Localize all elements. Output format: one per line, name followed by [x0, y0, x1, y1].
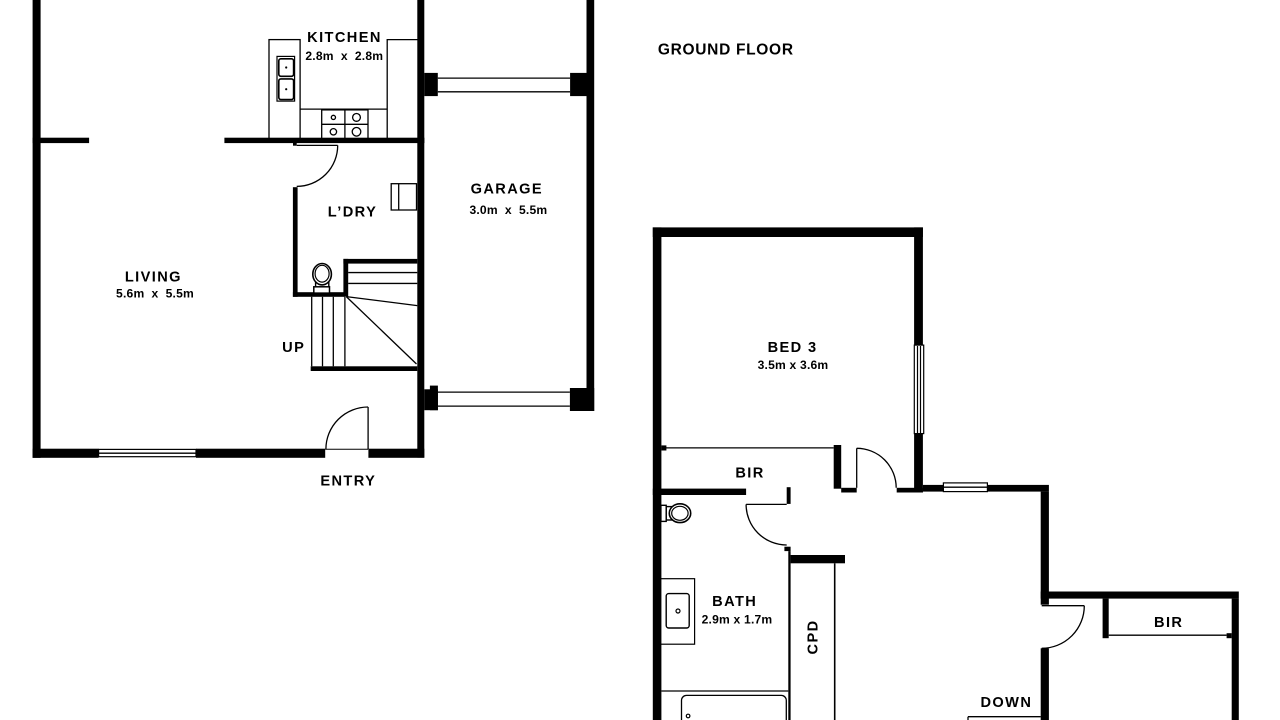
svg-text:L’DRY: L’DRY: [328, 205, 377, 221]
svg-text:3.0m x 5.5m: 3.0m x 5.5m: [469, 203, 547, 217]
svg-text:BED 3: BED 3: [768, 340, 818, 356]
svg-text:LIVING: LIVING: [125, 269, 182, 285]
svg-text:DOWN: DOWN: [980, 695, 1032, 711]
svg-text:3.5m x 3.6m: 3.5m x 3.6m: [758, 358, 829, 372]
svg-text:GROUND FLOOR: GROUND FLOOR: [658, 42, 794, 59]
svg-text:2.9m x 1.7m: 2.9m x 1.7m: [702, 613, 773, 627]
svg-text:BATH: BATH: [712, 594, 757, 610]
svg-text:KITCHEN: KITCHEN: [307, 30, 382, 46]
svg-text:BIR: BIR: [735, 466, 764, 482]
svg-text:CPD: CPD: [806, 619, 822, 654]
svg-text:2.8m x 2.8m: 2.8m x 2.8m: [305, 49, 383, 63]
svg-text:ENTRY: ENTRY: [320, 474, 376, 490]
svg-text:GARAGE: GARAGE: [471, 182, 543, 198]
svg-text:UP: UP: [282, 340, 305, 356]
svg-text:5.6m x 5.5m: 5.6m x 5.5m: [116, 287, 194, 301]
svg-text:BIR: BIR: [1154, 615, 1183, 631]
